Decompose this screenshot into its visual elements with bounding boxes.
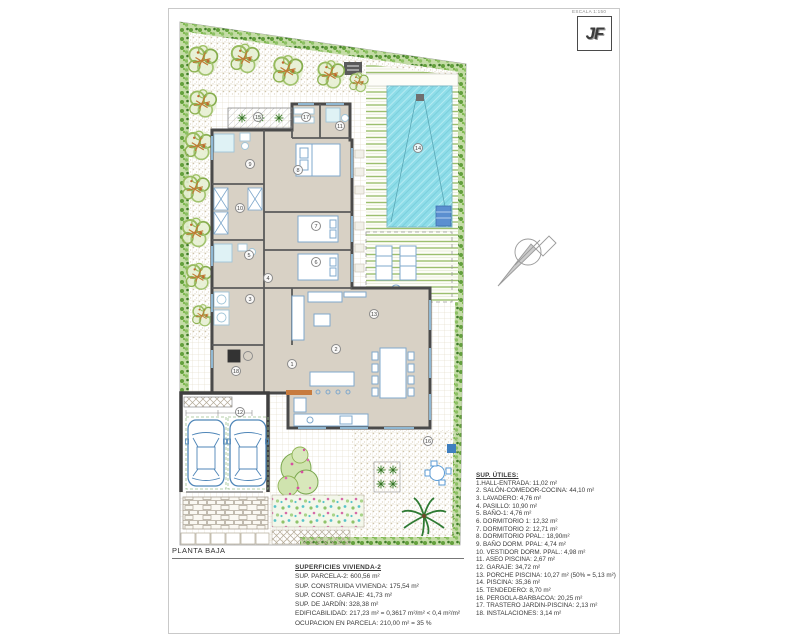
north-arrow-icon [498, 236, 556, 286]
legend-item: 14. PISCINA: 35,36 m² [476, 579, 616, 587]
superficies-line: SUP. DE JARDÍN: 328,38 m² [295, 600, 460, 609]
entrance-canopy [286, 390, 312, 395]
room-label-piscina: 14 [413, 143, 423, 153]
legend-item: 12. GARAJE: 34,72 m² [476, 564, 616, 572]
legend-item: 5. BAÑO-1: 4,76 m² [476, 510, 616, 518]
architect-logo: JF [577, 16, 612, 51]
legend-item: 13. PORCHE PISCINA: 10,27 m² (50% = 5,13… [476, 572, 616, 580]
superficies-block: SUPERFICIES VIVIENDA-2 SUP. PARCELA-2: 6… [295, 563, 460, 628]
car-1 [186, 420, 227, 486]
drawing-sheet: 1 2 3 4 5 6 7 8 9 10 11 12 13 14 15 16 1… [0, 0, 800, 640]
legend-item: 16. PERGOLA-BARBACOA: 20,25 m² [476, 595, 616, 603]
car-2 [228, 420, 269, 486]
room-label-garaje: 12 [235, 407, 245, 417]
legend-item: 18. INSTALACIONES: 3,14 m² [476, 610, 616, 618]
superficies-line: SUP. PARCELA-2: 600,56 m² [295, 572, 460, 581]
flower-bed [272, 495, 364, 527]
room-label-dormppal: 8 [293, 165, 303, 175]
site-plan-drawing [0, 0, 800, 640]
garage [181, 393, 269, 544]
legend-sup-utiles: SUP. ÚTILES: 1.HALL-ENTRADA: 11,02 m² 2.… [476, 472, 616, 617]
room-label-porche: 13 [369, 309, 379, 319]
room-label-bano1: 5 [244, 250, 254, 260]
legend-item: 2. SALÓN-COMEDOR-COCINA: 44,10 m² [476, 487, 616, 495]
room-label-pasillo: 4 [263, 273, 273, 283]
pool [387, 86, 452, 227]
legend-item: 6. DORMITORIO 1: 12,32 m² [476, 518, 616, 526]
superficies-line: OCUPACION EN PARCELA: 210,00 m² = 35 % [295, 619, 460, 628]
room-label-dormitorio2: 7 [311, 221, 321, 231]
legend-item: 8. DORMITORIO PPAL.: 18,90m² [476, 533, 616, 541]
superficies-line: EDIFICABILIDAD: 217,23 m² = 0,3617 m²/m²… [295, 609, 460, 618]
scale-label: ESCALA 1:150 [572, 9, 606, 14]
logo-text: JF [586, 24, 604, 44]
legend-item: 17. TRASTERO JARDIN-PISCINA: 2,13 m² [476, 602, 616, 610]
legend-item: 10. VESTIDOR DORM. PPAL.: 4,98 m² [476, 549, 616, 557]
legend-item: 3. LAVADERO: 4,76 m² [476, 495, 616, 503]
planter-grid [374, 462, 400, 492]
legend-item: 9. BAÑO DORM. PPAL: 4,74 m² [476, 541, 616, 549]
room-label-aseo: 11 [335, 121, 345, 131]
superficies-title: SUPERFICIES VIVIENDA-2 [295, 563, 460, 572]
room-label-trastero: 17 [301, 112, 311, 122]
superficies-line: SUP. CONST. GARAJE: 41,73 m² [295, 591, 460, 600]
legend-item: 15. TENDEDERO: 8,70 m² [476, 587, 616, 595]
outdoor-shower [447, 444, 456, 453]
legend-item: 11. ASEO PISCINA: 2,67 m² [476, 556, 616, 564]
walkway [272, 530, 350, 544]
room-label-tendedero: 15 [253, 112, 263, 122]
plan-title: PLANTA BAJA [172, 546, 464, 559]
legend-title: SUP. ÚTILES: [476, 472, 616, 480]
room-label-dormitorio1: 6 [311, 257, 321, 267]
superficies-line: SUP. CONSTRUIDA VIVIENDA: 175,54 m² [295, 582, 460, 591]
room-label-instalaciones: 18 [231, 366, 241, 376]
room-label-lavadero: 3 [245, 294, 255, 304]
legend-item: 7. DORMITORIO 2: 12,71 m² [476, 526, 616, 534]
room-label-pergola: 16 [423, 436, 433, 446]
room-label-hall: 1 [287, 359, 297, 369]
sidewalk [181, 533, 269, 544]
driveway [183, 497, 268, 529]
room-label-vestidor: 10 [235, 203, 245, 213]
room-label-banoppal: 9 [245, 159, 255, 169]
room-label-salon: 2 [331, 344, 341, 354]
